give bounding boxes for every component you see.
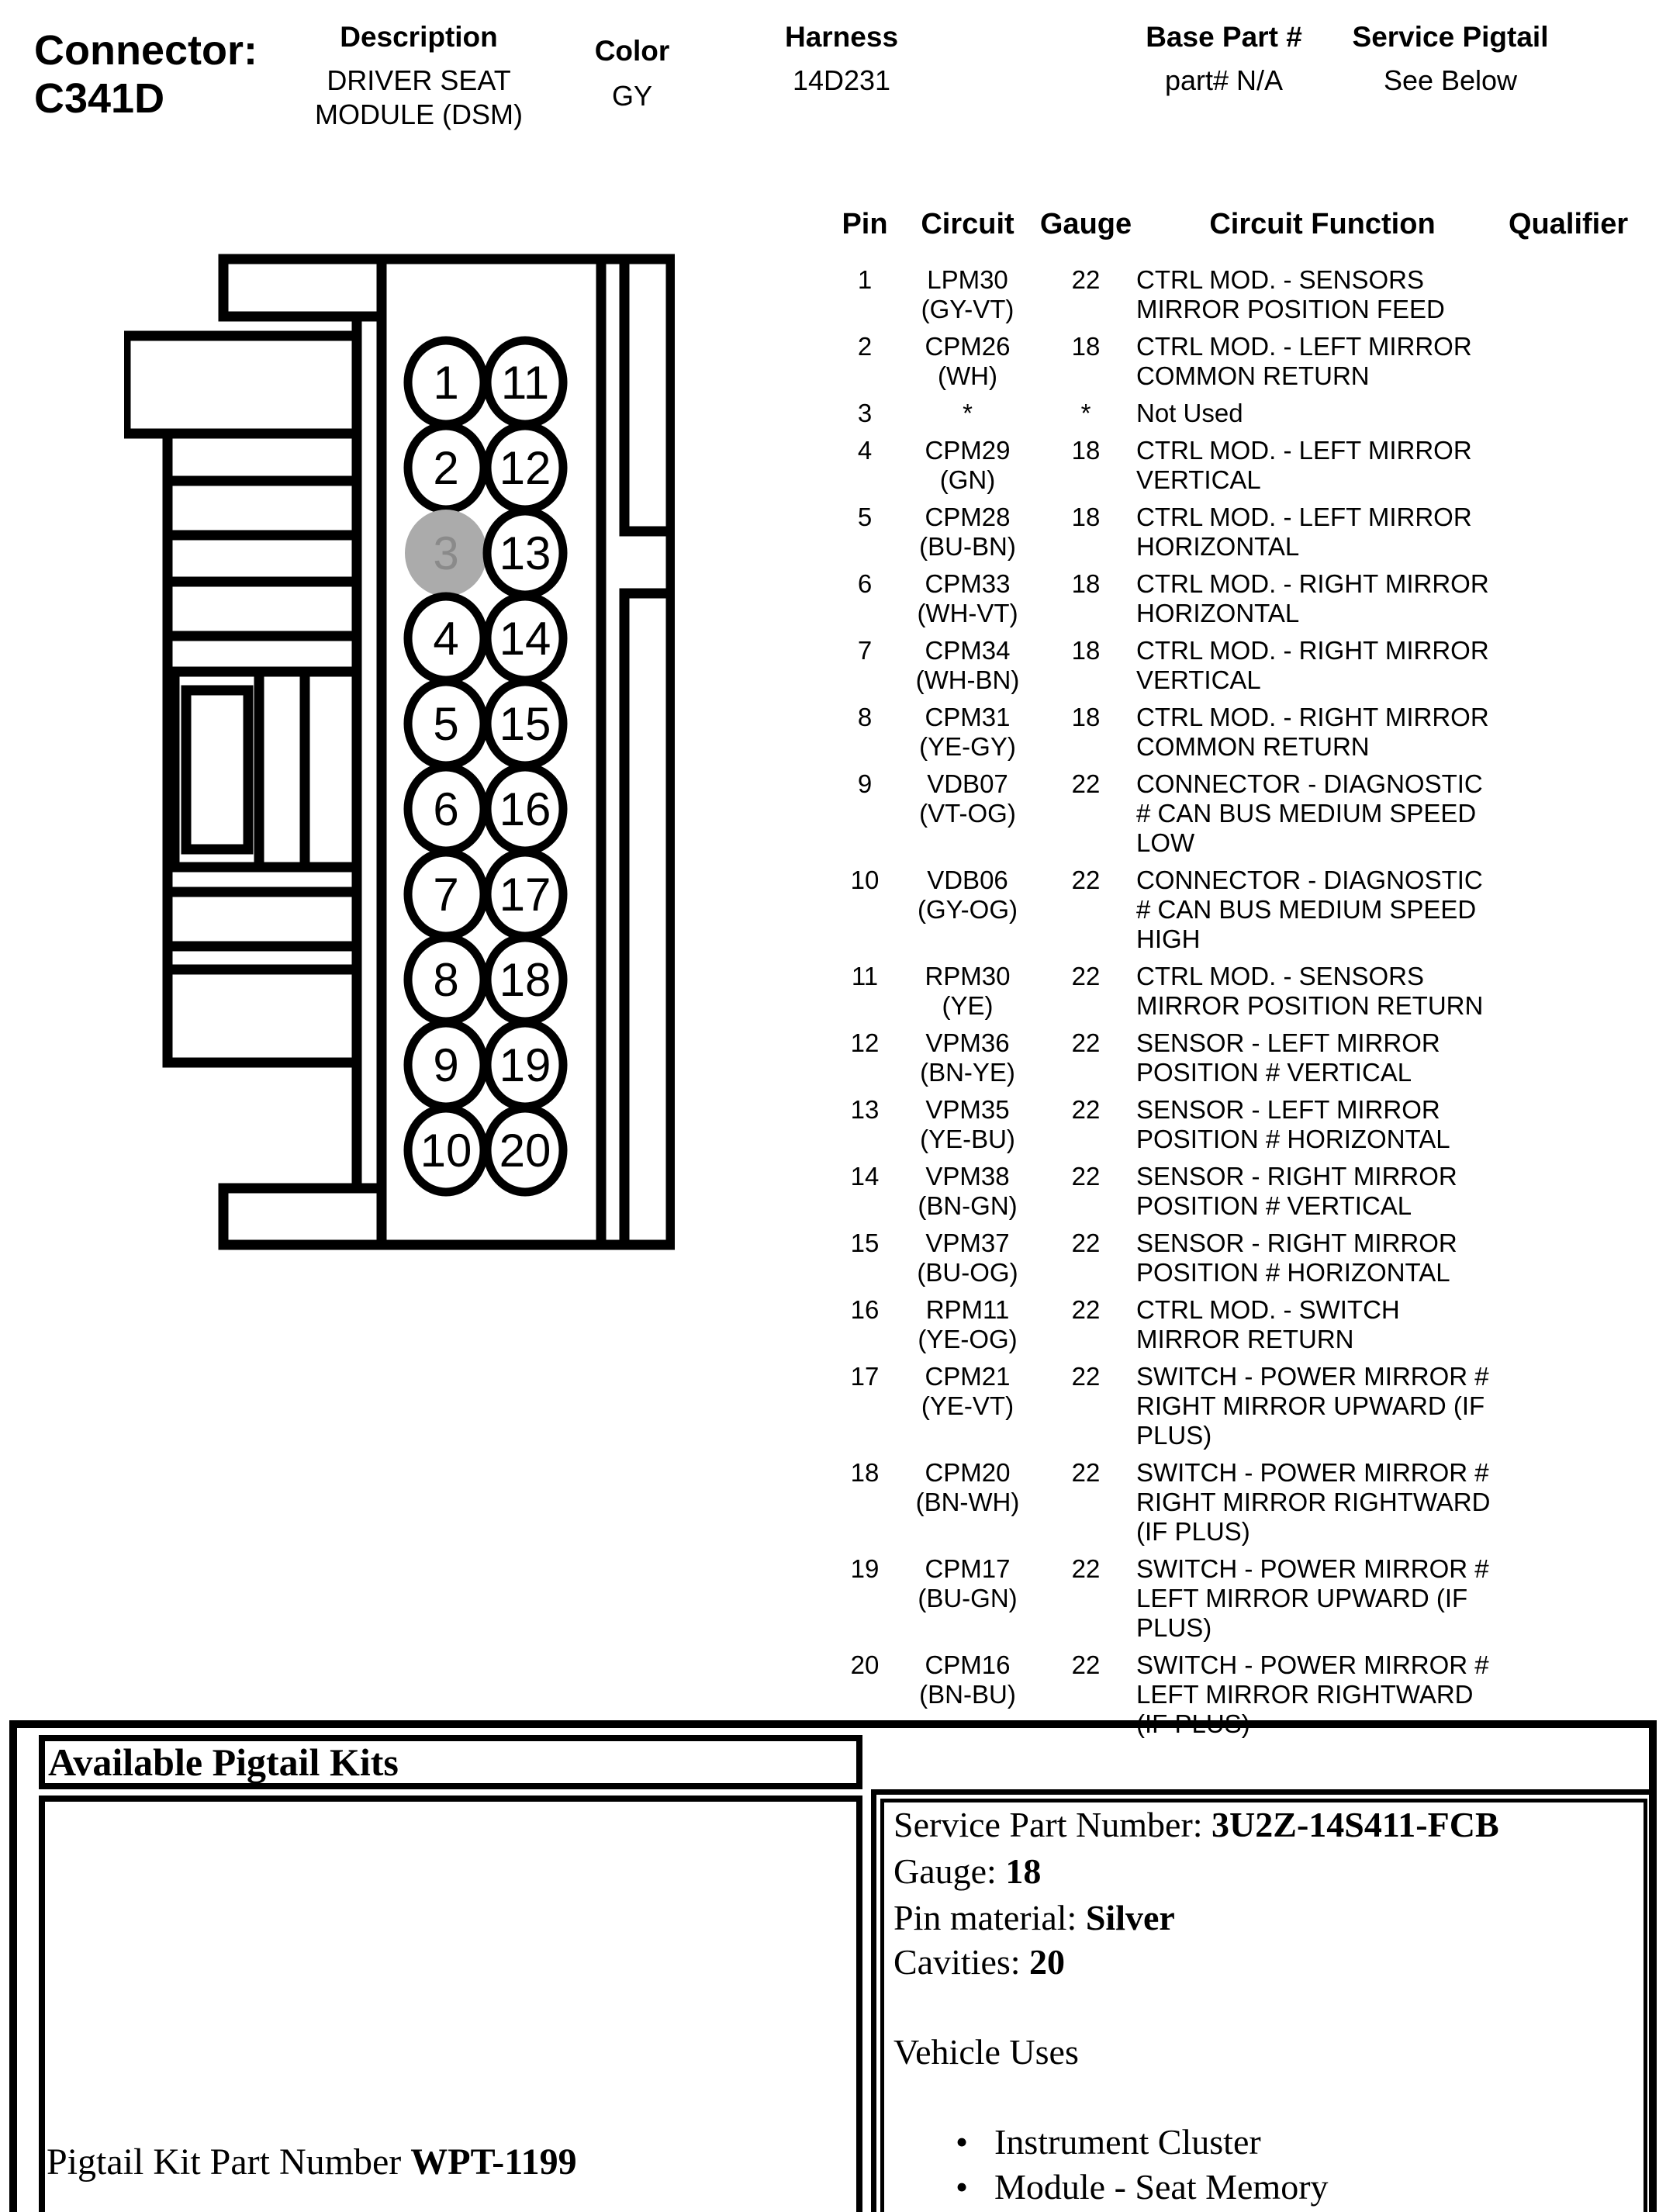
pin-cell: 9 <box>830 769 900 858</box>
pin-number-label: 14 <box>499 613 551 665</box>
latch-bar-2 <box>168 582 357 636</box>
qualifier-cell <box>1509 1458 1625 1547</box>
service-pigtail-label: Service Pigtail <box>1342 20 1559 54</box>
circuit-cell: CPM31(YE-GY) <box>900 703 1035 762</box>
pin-number-label: 2 <box>433 442 458 494</box>
circuit-cell: VPM35(YE-BU) <box>900 1095 1035 1154</box>
gauge-cell: 22 <box>1035 1162 1136 1221</box>
circuit-function-cell: SWITCH - POWER MIRROR # RIGHT MIRROR UPW… <box>1136 1362 1509 1450</box>
vehicle-use-item: •Module - Seat Memory <box>956 2165 1329 2210</box>
pin-cell: 7 <box>830 636 900 695</box>
pin-number-label: 9 <box>433 1039 458 1091</box>
circuit-function-cell: CTRL MOD. - SENSORS MIRROR POSITION FEED <box>1136 265 1509 324</box>
connector-diagram: 1234567891011121314151617181920 <box>124 248 675 1264</box>
pin-cell: 6 <box>830 569 900 628</box>
pin-number-label: 12 <box>499 442 551 494</box>
pin-cell: 5 <box>830 503 900 562</box>
qualifier-cell <box>1509 1554 1625 1643</box>
color-value: GY <box>570 79 694 113</box>
pigtail-kit-label: Pigtail Kit Part Number <box>47 2141 401 2183</box>
pin-table-row: 5CPM28(BU-BN)18CTRL MOD. - LEFT MIRROR H… <box>830 503 1629 562</box>
pin-cell: 18 <box>830 1458 900 1547</box>
circuit-function-cell: SWITCH - POWER MIRROR # RIGHT MIRROR RIG… <box>1136 1458 1509 1547</box>
gauge-cell: 22 <box>1035 1362 1136 1450</box>
col-header-circuit: Circuit <box>900 208 1035 240</box>
pin-number-label: 6 <box>433 783 458 835</box>
circuit-cell: CPM26(WH) <box>900 332 1035 391</box>
gauge-cell: 22 <box>1035 769 1136 858</box>
circuit-function-cell: CTRL MOD. - LEFT MIRROR HORIZONTAL <box>1136 503 1509 562</box>
pin-number-label: 15 <box>499 698 551 750</box>
description-label: Description <box>287 20 551 54</box>
qualifier-cell <box>1509 436 1625 495</box>
circuit-cell: VDB06(GY-OG) <box>900 866 1035 954</box>
pin-cell: 3 <box>830 399 900 428</box>
qualifier-cell <box>1509 1028 1625 1087</box>
circuit-function-cell: SENSOR - RIGHT MIRROR POSITION # VERTICA… <box>1136 1162 1509 1221</box>
gauge-cell: 22 <box>1035 962 1136 1021</box>
gauge-cell: 18 <box>1035 703 1136 762</box>
qualifier-cell <box>1509 503 1625 562</box>
circuit-function-cell: CTRL MOD. - LEFT MIRROR COMMON RETURN <box>1136 332 1509 391</box>
latch-ladder-inner <box>186 690 248 849</box>
gauge-cell: 22 <box>1035 1095 1136 1154</box>
pin-cell: 15 <box>830 1229 900 1287</box>
circuit-cell: CPM28(BU-BN) <box>900 503 1035 562</box>
pin-number-label: 11 <box>501 357 549 409</box>
pin-table-row: 9VDB07(VT-OG)22CONNECTOR - DIAGNOSTIC # … <box>830 769 1629 858</box>
qualifier-cell <box>1509 962 1625 1021</box>
connector-title: Connector: C341D <box>34 26 258 123</box>
pin-table-row: 13VPM35(YE-BU)22SENSOR - LEFT MIRROR POS… <box>830 1095 1629 1154</box>
latch-bar-3 <box>168 892 357 946</box>
pin-cell: 13 <box>830 1095 900 1154</box>
circuit-function-cell: CTRL MOD. - RIGHT MIRROR COMMON RETURN <box>1136 703 1509 762</box>
pin-table-row: 4CPM29(GN)18CTRL MOD. - LEFT MIRROR VERT… <box>830 436 1629 495</box>
pigtail-kit-number: WPT-1199 <box>410 2141 576 2183</box>
pin-number-label: 16 <box>499 783 551 835</box>
circuit-cell: RPM30(YE) <box>900 962 1035 1021</box>
cavities-line: Cavities: 20 <box>893 1942 1065 1982</box>
qualifier-cell <box>1509 703 1625 762</box>
qualifier-cell <box>1509 399 1625 428</box>
qualifier-cell <box>1509 1162 1625 1221</box>
pin-number-label: 10 <box>420 1125 472 1177</box>
circuit-cell: * <box>900 399 1035 428</box>
description-value: DRIVER SEAT MODULE (DSM) <box>287 64 551 132</box>
harness-label: Harness <box>756 20 927 54</box>
service-part-number-line: Service Part Number: 3U2Z-14S411-FCB <box>893 1805 1499 1845</box>
gauge-cell: 18 <box>1035 436 1136 495</box>
qualifier-cell <box>1509 636 1625 695</box>
pin-table-row: 10VDB06(GY-OG)22CONNECTOR - DIAGNOSTIC #… <box>830 866 1629 954</box>
pin-table-row: 1LPM30(GY-VT)22CTRL MOD. - SENSORS MIRRO… <box>830 265 1629 324</box>
circuit-cell: CPM20(BN-WH) <box>900 1458 1035 1547</box>
harness-value: 14D231 <box>756 64 927 98</box>
base-part-value: part# N/A <box>1123 64 1325 98</box>
pin-cell: 4 <box>830 436 900 495</box>
circuit-function-cell: CTRL MOD. - LEFT MIRROR VERTICAL <box>1136 436 1509 495</box>
circuit-cell: VDB07(VT-OG) <box>900 769 1035 858</box>
latch-tab-bottom <box>223 1188 382 1245</box>
circuit-function-cell: SENSOR - RIGHT MIRROR POSITION # HORIZON… <box>1136 1229 1509 1287</box>
circuit-cell: CPM34(WH-BN) <box>900 636 1035 695</box>
gauge-cell: 22 <box>1035 1229 1136 1287</box>
pigtail-kit-part-number: Pigtail Kit Part Number WPT-1199 <box>47 2141 577 2183</box>
bullet-icon: • <box>956 2165 994 2210</box>
pin-material-line: Pin material: Silver <box>893 1898 1175 1938</box>
circuit-function-cell: CTRL MOD. - RIGHT MIRROR VERTICAL <box>1136 636 1509 695</box>
col-header-circuit-function: Circuit Function <box>1136 208 1509 240</box>
header-field-harness: Harness 14D231 <box>756 20 927 98</box>
pin-number-label: 17 <box>499 869 551 921</box>
pin-cell: 8 <box>830 703 900 762</box>
gauge-cell: 22 <box>1035 866 1136 954</box>
pin-number-label: 18 <box>499 954 551 1006</box>
qualifier-cell <box>1509 1095 1625 1154</box>
pin-cell: 10 <box>830 866 900 954</box>
pin-number-label: 5 <box>433 698 458 750</box>
circuit-function-cell: CTRL MOD. - RIGHT MIRROR HORIZONTAL <box>1136 569 1509 628</box>
circuit-cell: RPM11(YE-OG) <box>900 1295 1035 1354</box>
pin-cell: 12 <box>830 1028 900 1087</box>
pin-number-label: 8 <box>433 954 458 1006</box>
header-field-description: Description DRIVER SEAT MODULE (DSM) <box>287 20 551 132</box>
pin-table-row: 8CPM31(YE-GY)18CTRL MOD. - RIGHT MIRROR … <box>830 703 1629 762</box>
pin-table-header: Pin Circuit Gauge Circuit Function Quali… <box>830 208 1629 240</box>
circuit-cell: CPM21(YE-VT) <box>900 1362 1035 1450</box>
right-notch-top <box>624 259 671 531</box>
circuit-function-cell: CONNECTOR - DIAGNOSTIC # CAN BUS MEDIUM … <box>1136 866 1509 954</box>
circuit-cell: LPM30(GY-VT) <box>900 265 1035 324</box>
qualifier-cell <box>1509 569 1625 628</box>
circuit-function-cell: CTRL MOD. - SENSORS MIRROR POSITION RETU… <box>1136 962 1509 1021</box>
pin-cell: 14 <box>830 1162 900 1221</box>
pin-table-row: 17CPM21(YE-VT)22SWITCH - POWER MIRROR # … <box>830 1362 1629 1450</box>
pin-cell: 19 <box>830 1554 900 1643</box>
latch-tab-top <box>223 259 382 316</box>
col-header-gauge: Gauge <box>1035 208 1136 240</box>
pin-table-row: 18CPM20(BN-WH)22SWITCH - POWER MIRROR # … <box>830 1458 1629 1547</box>
circuit-cell: VPM36(BN-YE) <box>900 1028 1035 1087</box>
pin-table-row: 19CPM17(BU-GN)22SWITCH - POWER MIRROR # … <box>830 1554 1629 1643</box>
header-field-base-part: Base Part # part# N/A <box>1123 20 1325 98</box>
base-part-label: Base Part # <box>1123 20 1325 54</box>
pin-table-row: 3**Not Used <box>830 399 1629 428</box>
service-pigtail-value: See Below <box>1342 64 1559 98</box>
pin-table-row: 15VPM37(BU-OG)22SENSOR - RIGHT MIRROR PO… <box>830 1229 1629 1287</box>
pin-cell: 17 <box>830 1362 900 1450</box>
pin-table-rows: 1LPM30(GY-VT)22CTRL MOD. - SENSORS MIRRO… <box>830 265 1629 1739</box>
pin-number-label: 13 <box>499 527 551 579</box>
pin-number-label: 4 <box>433 613 458 665</box>
gauge-cell: * <box>1035 399 1136 428</box>
pin-cell: 16 <box>830 1295 900 1354</box>
pin-table-row: 6CPM33(WH-VT)18CTRL MOD. - RIGHT MIRROR … <box>830 569 1629 628</box>
circuit-cell: CPM17(BU-GN) <box>900 1554 1035 1643</box>
pin-table-row: 12VPM36(BN-YE)22SENSOR - LEFT MIRROR POS… <box>830 1028 1629 1087</box>
latch-bar-1 <box>168 481 357 535</box>
pin-table-row: 2CPM26(WH)18CTRL MOD. - LEFT MIRROR COMM… <box>830 332 1629 391</box>
qualifier-cell <box>1509 1229 1625 1287</box>
available-pigtail-kits-title: Available Pigtail Kits <box>48 1740 399 1785</box>
qualifier-cell <box>1509 1295 1625 1354</box>
gauge-cell: 22 <box>1035 265 1136 324</box>
pin-cell: 2 <box>830 332 900 391</box>
gauge-cell: 18 <box>1035 569 1136 628</box>
pin-number-label: 19 <box>499 1039 551 1091</box>
gauge-cell: 18 <box>1035 332 1136 391</box>
circuit-function-cell: SENSOR - LEFT MIRROR POSITION # HORIZONT… <box>1136 1095 1509 1154</box>
pin-number-label: 20 <box>499 1125 551 1177</box>
latch-box-lower <box>168 969 357 1063</box>
circuit-function-cell: CTRL MOD. - SWITCH MIRROR RETURN <box>1136 1295 1509 1354</box>
vehicle-use-item: •Instrument Cluster <box>956 2120 1329 2165</box>
circuit-cell: VPM37(BU-OG) <box>900 1229 1035 1287</box>
circuit-cell: VPM38(BN-GN) <box>900 1162 1035 1221</box>
gauge-cell: 22 <box>1035 1295 1136 1354</box>
connector-label: Connector: <box>34 26 258 74</box>
connector-id: C341D <box>34 74 258 123</box>
vehicle-uses-title: Vehicle Uses <box>893 2032 1079 2072</box>
circuit-function-cell: Not Used <box>1136 399 1509 428</box>
circuit-function-cell: SWITCH - POWER MIRROR # LEFT MIRROR UPWA… <box>1136 1554 1509 1643</box>
col-header-qualifier: Qualifier <box>1509 208 1625 240</box>
qualifier-cell <box>1509 1362 1625 1450</box>
gauge-cell: 22 <box>1035 1458 1136 1547</box>
vehicle-uses-list: •Instrument Cluster•Module - Seat Memory <box>956 2120 1329 2210</box>
latch-box-upper <box>126 336 357 434</box>
gauge-cell: 18 <box>1035 503 1136 562</box>
gauge-line: Gauge: 18 <box>893 1851 1041 1892</box>
connector-spec-page: { "header": { "connector_label": "Connec… <box>0 0 1666 2212</box>
bullet-icon: • <box>956 2120 994 2165</box>
circuit-cell: CPM33(WH-VT) <box>900 569 1035 628</box>
color-label: Color <box>570 34 694 68</box>
pin-table-row: 16RPM11(YE-OG)22CTRL MOD. - SWITCH MIRRO… <box>830 1295 1629 1354</box>
header-field-service-pigtail: Service Pigtail See Below <box>1342 20 1559 98</box>
gauge-cell: 18 <box>1035 636 1136 695</box>
pin-table-row: 11RPM30(YE)22CTRL MOD. - SENSORS MIRROR … <box>830 962 1629 1021</box>
qualifier-cell <box>1509 265 1625 324</box>
qualifier-cell <box>1509 769 1625 858</box>
pin-cell: 1 <box>830 265 900 324</box>
right-notch-bottom <box>624 593 671 1245</box>
circuit-cell: CPM29(GN) <box>900 436 1035 495</box>
gauge-cell: 22 <box>1035 1028 1136 1087</box>
pin-cell: 11 <box>830 962 900 1021</box>
pin-table-row: 14VPM38(BN-GN)22SENSOR - RIGHT MIRROR PO… <box>830 1162 1629 1221</box>
pin-number-label: 1 <box>433 357 458 409</box>
qualifier-cell <box>1509 332 1625 391</box>
pin-table: Pin Circuit Gauge Circuit Function Quali… <box>830 208 1629 1747</box>
circuit-function-cell: SENSOR - LEFT MIRROR POSITION # VERTICAL <box>1136 1028 1509 1087</box>
header-field-color: Color GY <box>570 34 694 113</box>
circuit-function-cell: CONNECTOR - DIAGNOSTIC # CAN BUS MEDIUM … <box>1136 769 1509 858</box>
col-header-pin: Pin <box>830 208 900 240</box>
pin-table-row: 7CPM34(WH-BN)18CTRL MOD. - RIGHT MIRROR … <box>830 636 1629 695</box>
pin-number-label: 7 <box>433 869 458 921</box>
gauge-cell: 22 <box>1035 1554 1136 1643</box>
pin-number-label: 3 <box>433 527 458 579</box>
qualifier-cell <box>1509 866 1625 954</box>
